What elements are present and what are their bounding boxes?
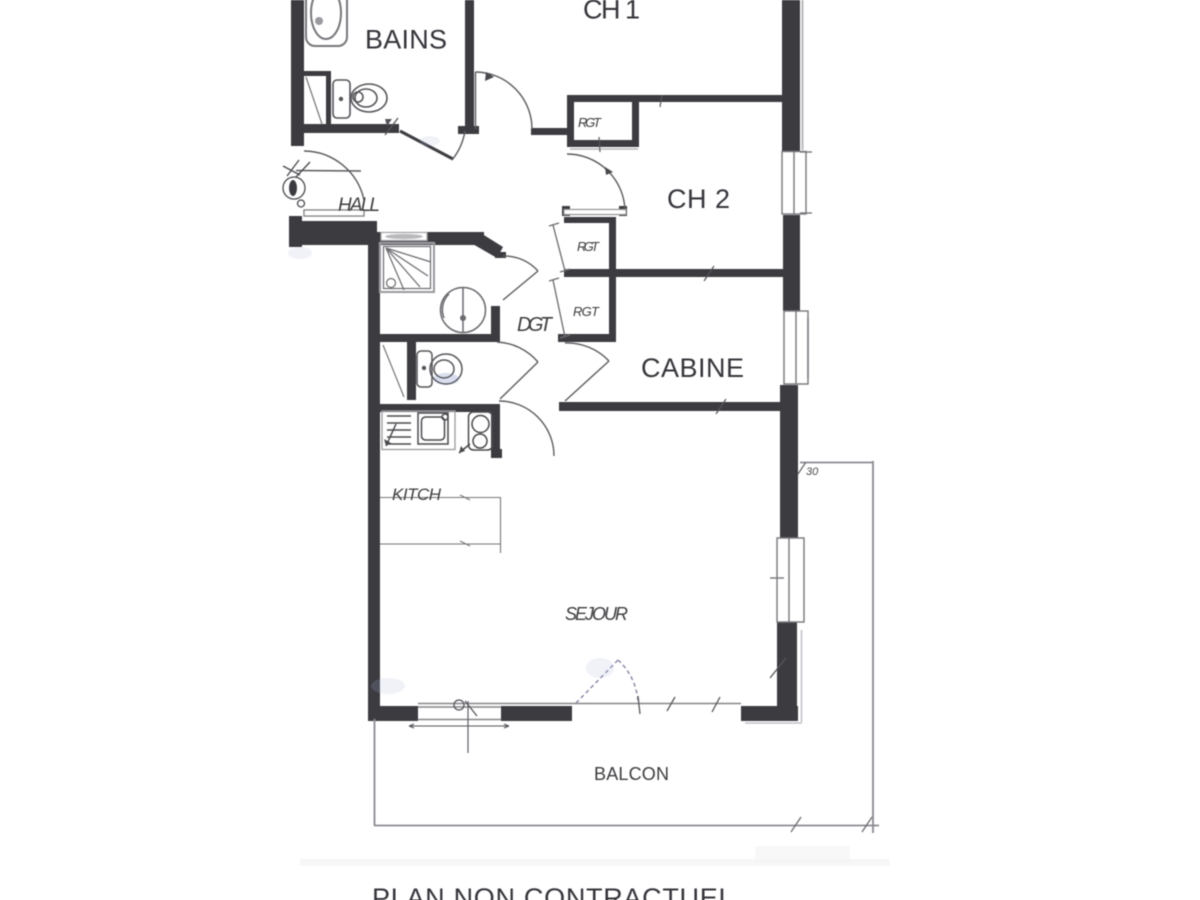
svg-text:RGT: RGT xyxy=(578,115,602,130)
svg-text:CABINE: CABINE xyxy=(641,353,745,383)
svg-text:SEJOUR: SEJOUR xyxy=(565,604,628,624)
svg-text:RGT: RGT xyxy=(573,304,600,319)
svg-text:CH 2: CH 2 xyxy=(667,184,730,214)
svg-text:RGT: RGT xyxy=(577,239,600,254)
svg-text:HALL: HALL xyxy=(338,195,380,216)
svg-text:KITCH: KITCH xyxy=(392,485,442,504)
svg-text:BAINS: BAINS xyxy=(365,25,448,55)
svg-text:DGT: DGT xyxy=(517,314,554,336)
svg-text:CH 1: CH 1 xyxy=(583,0,640,25)
svg-text:BALCON: BALCON xyxy=(594,764,669,784)
svg-text:PLAN NON CONTRACTUEL: PLAN NON CONTRACTUEL xyxy=(372,883,734,900)
svg-text:30: 30 xyxy=(806,466,819,478)
